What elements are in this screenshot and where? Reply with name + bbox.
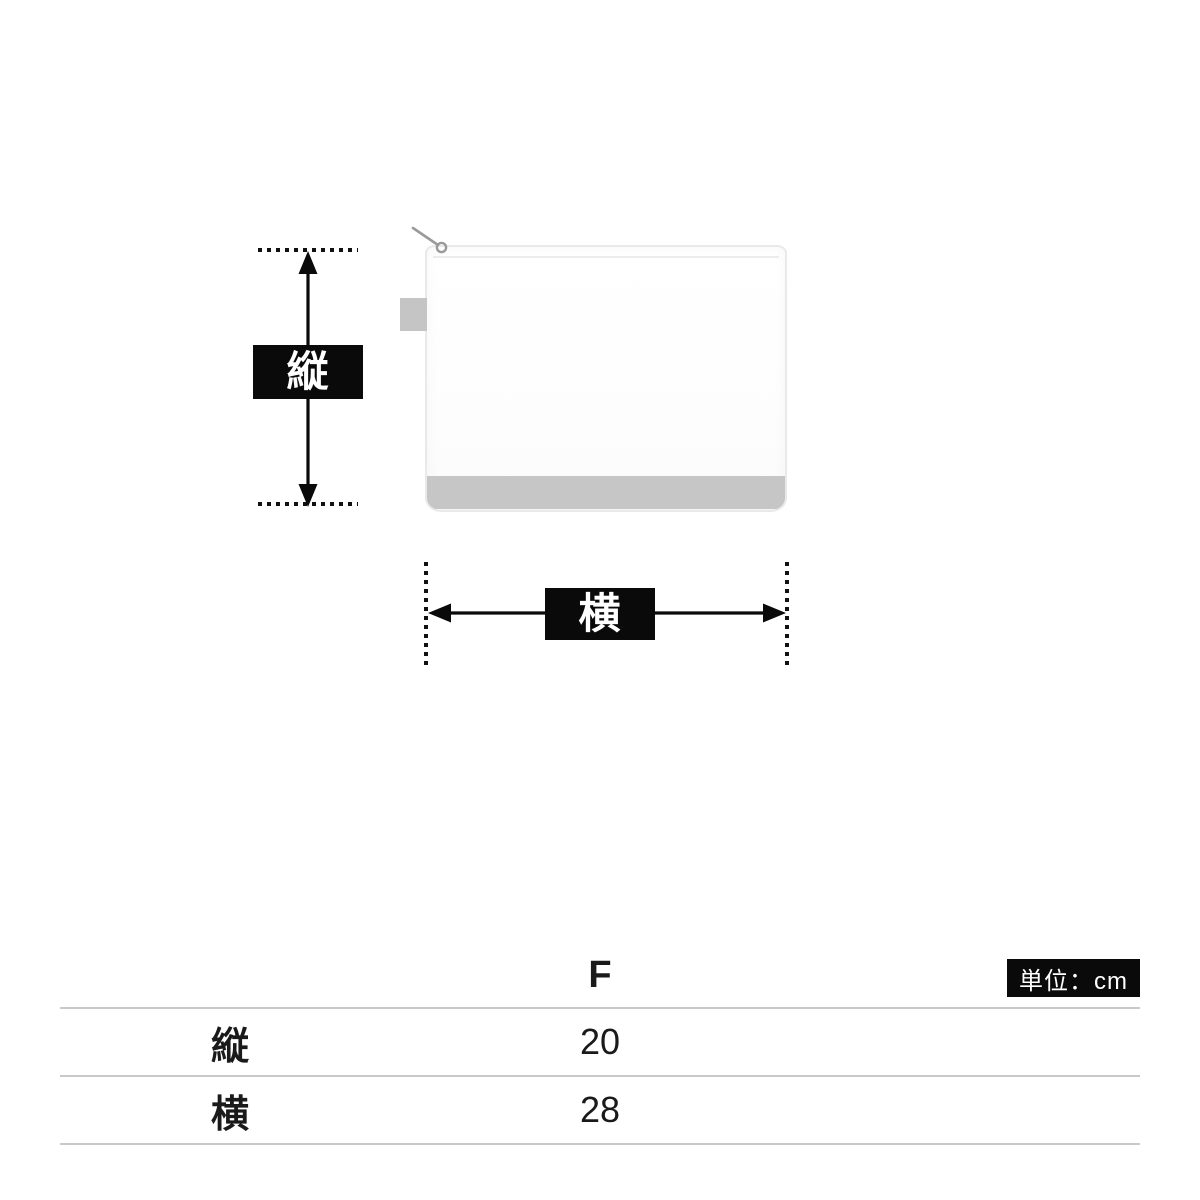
zipper-pull-icon [406, 221, 454, 257]
dimension-value-cell: 20 [400, 1021, 800, 1063]
table-row: 縦 20 [60, 1007, 1140, 1075]
pouch-bottom-band [427, 476, 785, 509]
size-table-header: F 単位：cm [60, 943, 1140, 1007]
size-column-header: F [400, 954, 800, 997]
size-guide-page: 縦 横 F 単位：cm 縦 20 横 28 [0, 0, 1200, 1200]
size-table: F 単位：cm 縦 20 横 28 [60, 943, 1140, 1145]
vertical-dimension-label-box: 縦 [253, 345, 363, 399]
pouch-side-tab [400, 298, 427, 331]
zipper-seam [433, 256, 779, 258]
horizontal-dimension-label: 横 [578, 593, 621, 635]
vertical-dimension-label: 縦 [286, 351, 329, 393]
pouch-illustration [425, 245, 787, 512]
horizontal-dimension-label-box: 横 [545, 588, 655, 640]
table-row: 横 28 [60, 1075, 1140, 1145]
dimension-name-cell: 縦 [60, 1015, 400, 1070]
dimension-value-cell: 28 [400, 1089, 800, 1131]
unit-badge: 単位：cm [1007, 959, 1140, 997]
dimension-name-cell: 横 [60, 1083, 400, 1138]
size-table-rows: 縦 20 横 28 [60, 1007, 1140, 1145]
